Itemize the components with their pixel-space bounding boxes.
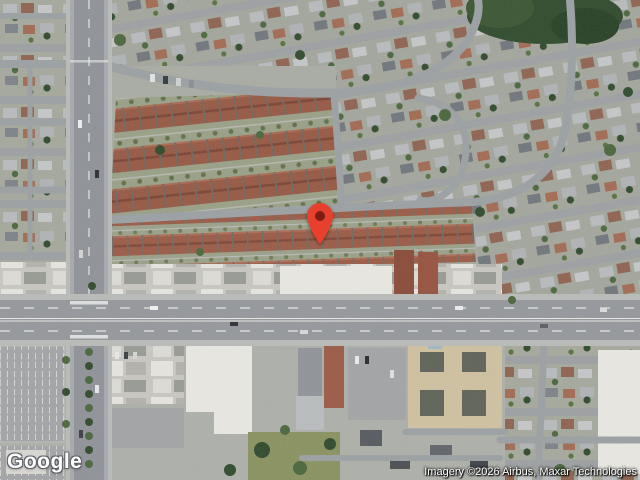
map-container[interactable]: Google Imagery ©2026 Airbus, Maxar Techn… bbox=[0, 0, 640, 480]
pin-icon bbox=[306, 202, 334, 246]
map-marker[interactable] bbox=[306, 202, 334, 246]
google-logo[interactable]: Google bbox=[7, 450, 82, 474]
imagery-attribution: Imagery ©2026 Airbus, Maxar Technologies bbox=[424, 466, 637, 478]
